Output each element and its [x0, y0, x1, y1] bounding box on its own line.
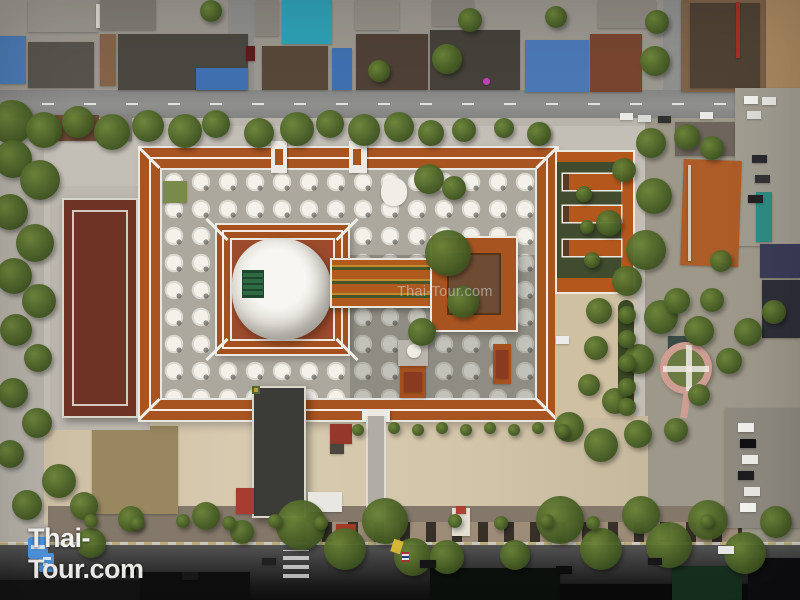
small-structure	[404, 372, 422, 392]
tree	[586, 298, 612, 324]
tree	[412, 424, 424, 436]
tree	[202, 110, 230, 138]
bell-tower-roof	[252, 386, 306, 518]
tree	[624, 420, 652, 448]
tree	[494, 516, 508, 530]
car	[718, 546, 734, 554]
tree	[200, 0, 222, 22]
car	[182, 572, 198, 580]
tree	[20, 160, 60, 200]
tree	[222, 516, 236, 530]
tree	[348, 114, 380, 146]
west-hall-roof	[62, 198, 138, 418]
building-roof	[262, 46, 328, 90]
tree	[508, 424, 520, 436]
tree	[580, 220, 594, 234]
tree	[664, 418, 688, 442]
tree	[362, 498, 408, 544]
tree	[22, 408, 52, 438]
building-roof	[356, 34, 428, 90]
tree	[0, 314, 32, 346]
tree	[452, 118, 476, 142]
tree	[540, 514, 554, 528]
tree	[545, 6, 567, 28]
tree	[576, 186, 592, 202]
car	[262, 558, 276, 565]
small-structure	[688, 165, 691, 261]
tree	[24, 344, 52, 372]
tree	[618, 398, 636, 416]
tree	[16, 224, 54, 262]
car	[740, 439, 756, 448]
car	[738, 471, 754, 480]
north-gate-west	[271, 141, 287, 173]
tree	[527, 122, 551, 146]
building-roof	[736, 2, 740, 58]
small-structure	[672, 566, 742, 600]
tree	[762, 300, 786, 324]
construction-scaffold-net	[242, 270, 264, 298]
tower-roof-panel	[254, 388, 258, 392]
tree	[0, 378, 28, 408]
tree	[645, 10, 669, 34]
tree	[458, 8, 482, 32]
tree	[192, 502, 220, 530]
tree	[42, 464, 76, 498]
car	[620, 113, 633, 120]
logo-text: Thai-Tour.com	[28, 523, 144, 585]
car	[658, 116, 671, 123]
tree	[316, 110, 344, 138]
tree	[0, 194, 28, 230]
center-watermark: Thai-Tour.com	[397, 284, 493, 300]
car	[742, 455, 758, 464]
tree	[62, 106, 94, 138]
tree	[532, 422, 544, 434]
gate-roof	[353, 149, 361, 165]
tree	[684, 316, 714, 346]
tree	[584, 336, 608, 360]
tree	[612, 266, 642, 296]
tree	[26, 112, 62, 148]
tree	[432, 44, 462, 74]
aerial-photo-canvas: Thai-Tour.com Thai-Tour.com	[0, 0, 800, 600]
tree	[448, 514, 462, 528]
tree	[168, 114, 202, 148]
tree	[700, 136, 724, 160]
small-structure	[330, 444, 344, 454]
tree	[132, 110, 164, 142]
tree	[618, 330, 636, 348]
building-roof	[100, 0, 156, 30]
tree	[674, 124, 700, 150]
small-structure	[456, 506, 466, 514]
building-roof	[100, 34, 116, 86]
tree	[664, 288, 690, 314]
tree	[414, 164, 444, 194]
car	[556, 336, 569, 344]
building-roof	[725, 408, 800, 528]
tree	[352, 424, 364, 436]
tree	[460, 424, 472, 436]
building-roof	[28, 42, 94, 88]
small-structure	[496, 350, 508, 378]
tree	[384, 112, 414, 142]
gate-roof	[275, 149, 283, 165]
building-roof	[332, 48, 352, 90]
tree	[418, 120, 444, 146]
tree	[612, 158, 636, 182]
crosswalk	[283, 550, 309, 578]
car	[740, 503, 756, 512]
north-road-centerline	[0, 103, 800, 105]
building-roof	[766, 0, 800, 90]
car	[748, 195, 763, 203]
car	[556, 566, 572, 574]
tree	[700, 514, 714, 528]
tree	[176, 514, 190, 528]
tree	[280, 112, 314, 146]
tree	[636, 178, 672, 214]
tree	[408, 318, 436, 346]
tree	[618, 354, 636, 372]
viharn-striped-roof	[330, 258, 444, 308]
tree	[584, 252, 600, 268]
tree	[324, 528, 366, 570]
car	[246, 46, 255, 61]
small-structure	[330, 424, 352, 444]
thai-flag	[402, 552, 409, 562]
tree	[94, 114, 130, 150]
car	[747, 111, 761, 119]
tree	[580, 528, 622, 570]
tree	[688, 384, 710, 406]
building-roof	[92, 426, 178, 514]
tree	[22, 284, 56, 318]
building-roof	[690, 3, 760, 88]
tree	[436, 422, 448, 434]
tree	[716, 348, 742, 374]
tree	[710, 250, 732, 272]
tree	[760, 506, 792, 538]
car	[762, 97, 776, 105]
building-roof	[196, 68, 248, 90]
car	[738, 423, 754, 432]
tree	[618, 378, 636, 396]
tree	[388, 422, 400, 434]
car	[420, 560, 436, 568]
building-roof	[760, 244, 800, 278]
tree	[596, 210, 622, 236]
tree	[442, 176, 466, 200]
building-roof	[0, 36, 26, 84]
car	[638, 115, 651, 122]
building-roof	[483, 78, 490, 85]
tree	[584, 428, 618, 462]
tree	[734, 318, 762, 346]
tree	[484, 422, 496, 434]
building-roof	[282, 0, 332, 44]
building-roof	[28, 0, 98, 32]
building-roof	[590, 34, 642, 92]
tree	[618, 306, 636, 324]
car	[744, 487, 760, 496]
tree	[425, 230, 471, 276]
tree	[0, 440, 24, 468]
car	[755, 175, 770, 183]
tree	[368, 60, 390, 82]
tree	[700, 288, 724, 312]
tree	[636, 128, 666, 158]
small-structure	[236, 488, 254, 514]
tree	[314, 516, 328, 530]
tree	[494, 118, 514, 138]
monument-path	[663, 366, 709, 372]
building-roof	[525, 40, 589, 92]
small-structure	[407, 344, 421, 358]
tree	[556, 424, 570, 438]
building-roof	[255, 0, 279, 36]
building-roof	[355, 0, 399, 30]
car	[752, 155, 767, 163]
tree	[500, 540, 530, 570]
tree	[578, 374, 600, 396]
tree	[430, 540, 464, 574]
west-hall-ridge	[72, 210, 128, 406]
tree	[626, 230, 666, 270]
tree	[586, 516, 600, 530]
car	[700, 112, 713, 119]
tree	[268, 514, 282, 528]
annex-row-building	[563, 174, 621, 190]
tree	[244, 118, 274, 148]
tree	[12, 490, 42, 520]
tree	[640, 46, 670, 76]
car	[648, 558, 662, 565]
small-structure	[381, 178, 407, 206]
small-structure	[163, 181, 187, 203]
car	[744, 96, 758, 104]
